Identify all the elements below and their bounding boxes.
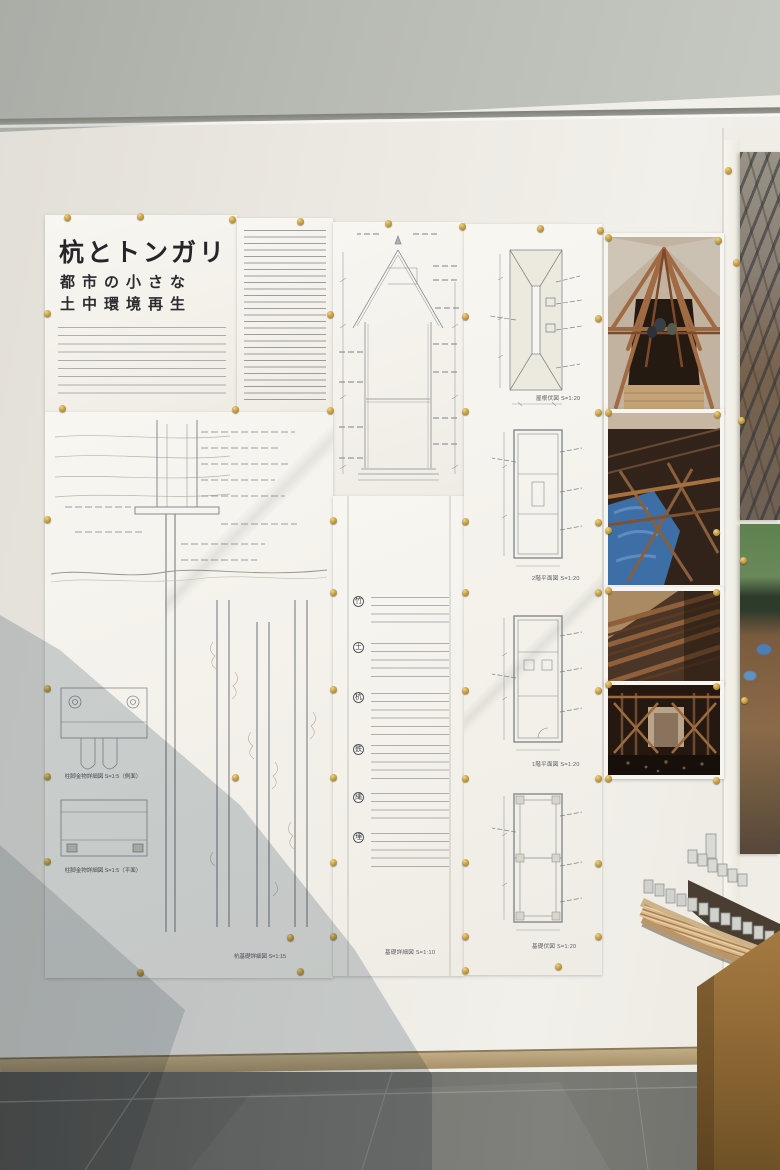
note-item-backfill: 埋 (353, 832, 449, 872)
credits-small-print (58, 327, 226, 397)
notes-sheet: 竹 土 杭 鉄 縄 埋 基礎詳細図 S=1:10 (333, 496, 464, 976)
note-marker: 埋 (353, 832, 364, 843)
pile-caption: 杭基礎詳細図 S=1:15 (234, 952, 286, 960)
side-wall-aerial-photo-poster (740, 524, 780, 854)
statement-text-sheet (237, 218, 333, 414)
note-item-bamboo: 竹 (353, 596, 449, 628)
note-marker: 縄 (353, 792, 364, 803)
plan-caption-4: 基礎伏図 S=1:20 (532, 942, 576, 950)
note-marker: 竹 (353, 596, 364, 607)
statement-text-block (244, 230, 326, 402)
floor1-plan-figure (476, 608, 596, 756)
plan-caption-3: 1階平面図 S=1:20 (532, 760, 580, 768)
side-wall-scaffold-photo-poster (740, 152, 780, 520)
tower-section-sheet (333, 222, 464, 496)
tower-section-drawing (333, 222, 464, 496)
photo-blue-tarp-interior (604, 409, 724, 589)
exhibition-subtitle-line2: 土中環境再生 (60, 293, 192, 314)
detail-caption-side: 柱脚金物詳細図 S=1:5（側面） (65, 772, 142, 780)
note-item-iron: 鉄 (353, 744, 449, 784)
note-item-rope: 縄 (353, 792, 449, 824)
plans-sheet: 屋根伏図 S=1:20 2階平面図 S=1:20 (464, 224, 602, 975)
pile-detail-sheet: 柱脚金物詳細図 S=1:5（側面） 柱脚金物詳細図 S=1:5（平面） 杭基礎詳… (45, 412, 333, 978)
plan-caption-2: 2階平面図 S=1:20 (532, 574, 580, 582)
roof-plan-figure (476, 240, 596, 418)
note-marker: 鉄 (353, 744, 364, 755)
note-marker: 土 (353, 642, 364, 653)
pile-detail-drawing: 柱脚金物詳細図 S=1:5（側面） 柱脚金物詳細図 S=1:5（平面） 杭基礎詳… (45, 412, 333, 978)
model-counter (628, 828, 780, 1170)
exhibition-title: 杭とトンガリ (59, 233, 227, 269)
gallery-room-photo: 杭とトンガリ 都市の小さな 土中環境再生 (0, 0, 780, 1170)
detail-caption-plan: 柱脚金物詳細図 S=1:5（平面） (65, 866, 142, 874)
title-sheet: 杭とトンガリ 都市の小さな 土中環境再生 (45, 215, 237, 412)
notes-caption: 基礎詳細図 S=1:10 (385, 948, 435, 956)
photo-ceiling-joists (604, 587, 724, 685)
foundation-plan-figure (476, 786, 596, 936)
note-marker: 杭 (353, 692, 364, 703)
photo-braced-corridor (604, 681, 724, 779)
floor2-plan-figure (476, 422, 596, 572)
note-item-pile: 杭 (353, 692, 449, 738)
plan-caption-1: 屋根伏図 S=1:20 (536, 394, 580, 402)
exhibition-subtitle-line1: 都市の小さな (60, 271, 192, 292)
photo-roof-apex (604, 233, 724, 413)
note-item-soil: 土 (353, 642, 449, 682)
